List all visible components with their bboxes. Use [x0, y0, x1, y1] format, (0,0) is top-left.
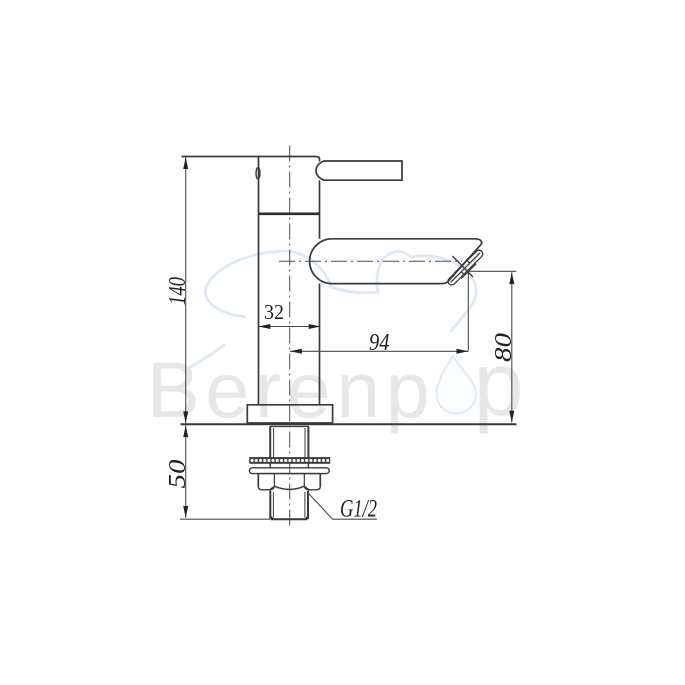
svg-text:80: 80 — [491, 333, 517, 362]
svg-text:94: 94 — [369, 330, 390, 356]
svg-text:G1/2: G1/2 — [340, 496, 377, 523]
svg-text:Berenp: Berenp — [147, 345, 435, 434]
svg-text:32: 32 — [264, 300, 284, 324]
svg-text:50: 50 — [165, 460, 191, 489]
svg-text:140: 140 — [165, 277, 191, 305]
